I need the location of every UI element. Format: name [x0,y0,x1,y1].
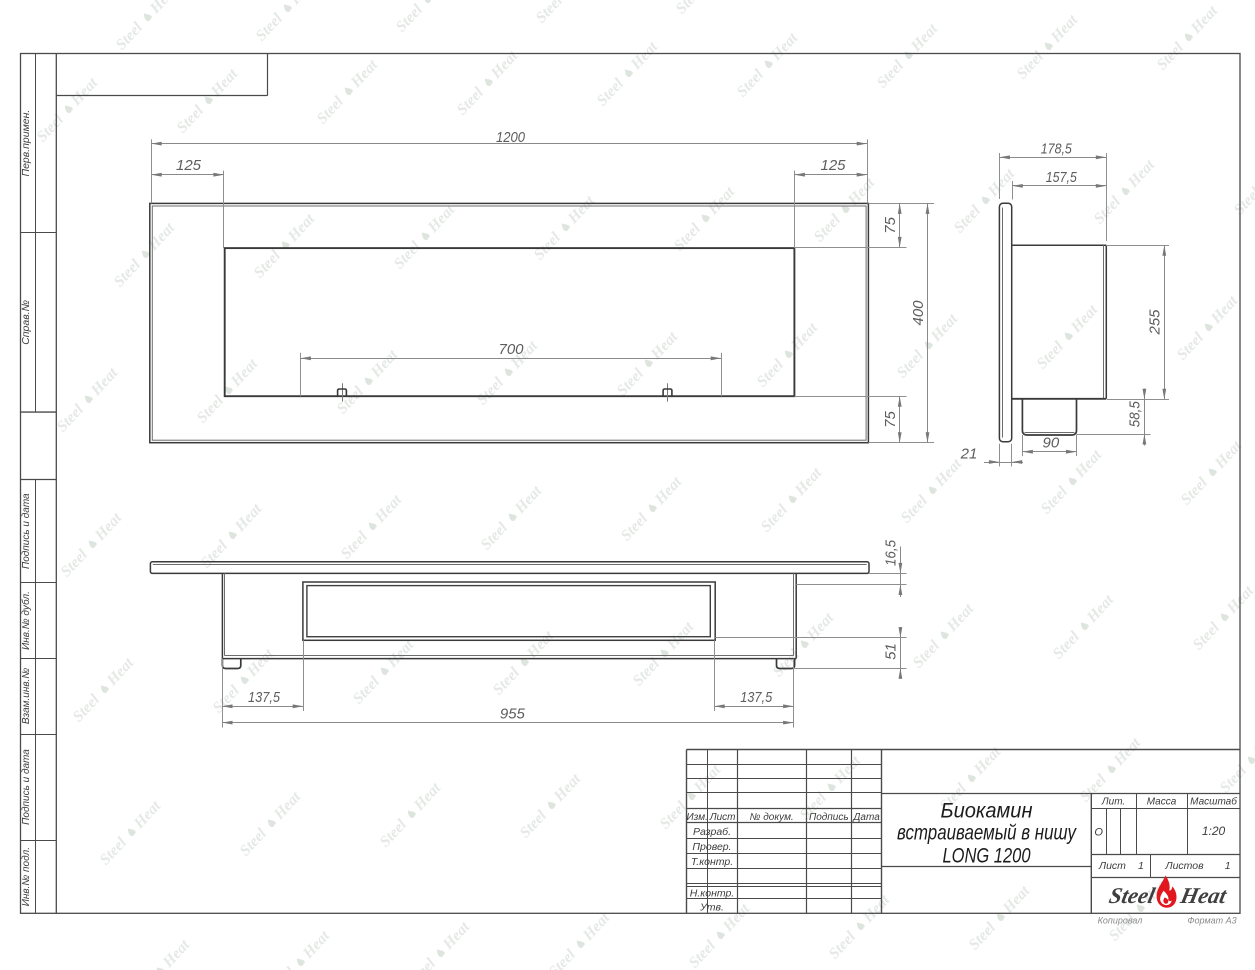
svg-text:Разраб.: Разраб. [693,826,731,838]
svg-text:О: О [1094,826,1103,838]
svg-text:Подпись: Подпись [809,812,849,823]
svg-text:Т.контр.: Т.контр. [691,856,733,868]
svg-text:№ докум.: № докум. [750,812,794,823]
svg-text:700: 700 [498,341,524,358]
svg-text:58,5: 58,5 [1127,401,1144,428]
svg-text:Утв.: Утв. [699,902,724,914]
svg-text:157,5: 157,5 [1046,169,1078,186]
svg-text:Масса: Масса [1147,796,1177,807]
svg-text:Лист: Лист [709,812,736,823]
svg-text:Heat: Heat [1177,883,1229,908]
svg-text:Изм.: Изм. [687,812,708,823]
svg-text:Инв.№ подл.: Инв.№ подл. [21,847,32,906]
svg-text:Steel: Steel [1107,883,1158,908]
svg-text:125: 125 [176,157,202,174]
svg-text:Взам.инв.№: Взам.инв.№ [21,668,32,724]
svg-text:255: 255 [1147,309,1164,336]
svg-text:встраиваемый в нишу: встраиваемый в нишу [897,822,1077,845]
svg-text:90: 90 [1043,435,1060,452]
svg-text:1200: 1200 [496,129,526,146]
svg-text:Дата: Дата [852,812,880,823]
svg-text:21: 21 [960,446,978,463]
svg-text:1:20: 1:20 [1202,824,1226,838]
svg-text:Копировал: Копировал [1098,916,1143,926]
svg-text:Лист: Лист [1098,860,1126,872]
svg-text:Справ.№: Справ.№ [20,300,32,345]
svg-text:Перв.примен.: Перв.примен. [20,110,32,177]
svg-text:Инв.№ дубл.: Инв.№ дубл. [20,591,32,650]
svg-text:178,5: 178,5 [1041,140,1073,157]
svg-text:1: 1 [1225,860,1231,872]
svg-text:Масштаб: Масштаб [1190,795,1237,807]
svg-text:955: 955 [500,705,526,722]
svg-text:75: 75 [882,216,899,233]
svg-text:Подпись и дата: Подпись и дата [21,493,32,569]
svg-text:75: 75 [882,411,899,428]
svg-text:137,5: 137,5 [740,689,773,706]
svg-text:400: 400 [910,300,927,326]
svg-text:125: 125 [820,157,846,174]
svg-text:Биокамин: Биокамин [941,800,1033,823]
svg-text:Подпись и дата: Подпись и дата [21,749,32,825]
svg-text:Провер.: Провер. [692,841,731,853]
svg-text:Лит.: Лит. [1101,796,1125,807]
svg-text:1: 1 [1138,860,1144,872]
svg-text:16,5: 16,5 [883,539,900,566]
svg-text:Листов: Листов [1164,860,1204,872]
svg-text:LONG 1200: LONG 1200 [943,845,1031,868]
svg-text:Н.контр.: Н.контр. [690,888,734,900]
svg-text:137,5: 137,5 [248,689,281,706]
svg-text:51: 51 [883,643,900,660]
svg-text:Формат А3: Формат А3 [1187,916,1236,926]
